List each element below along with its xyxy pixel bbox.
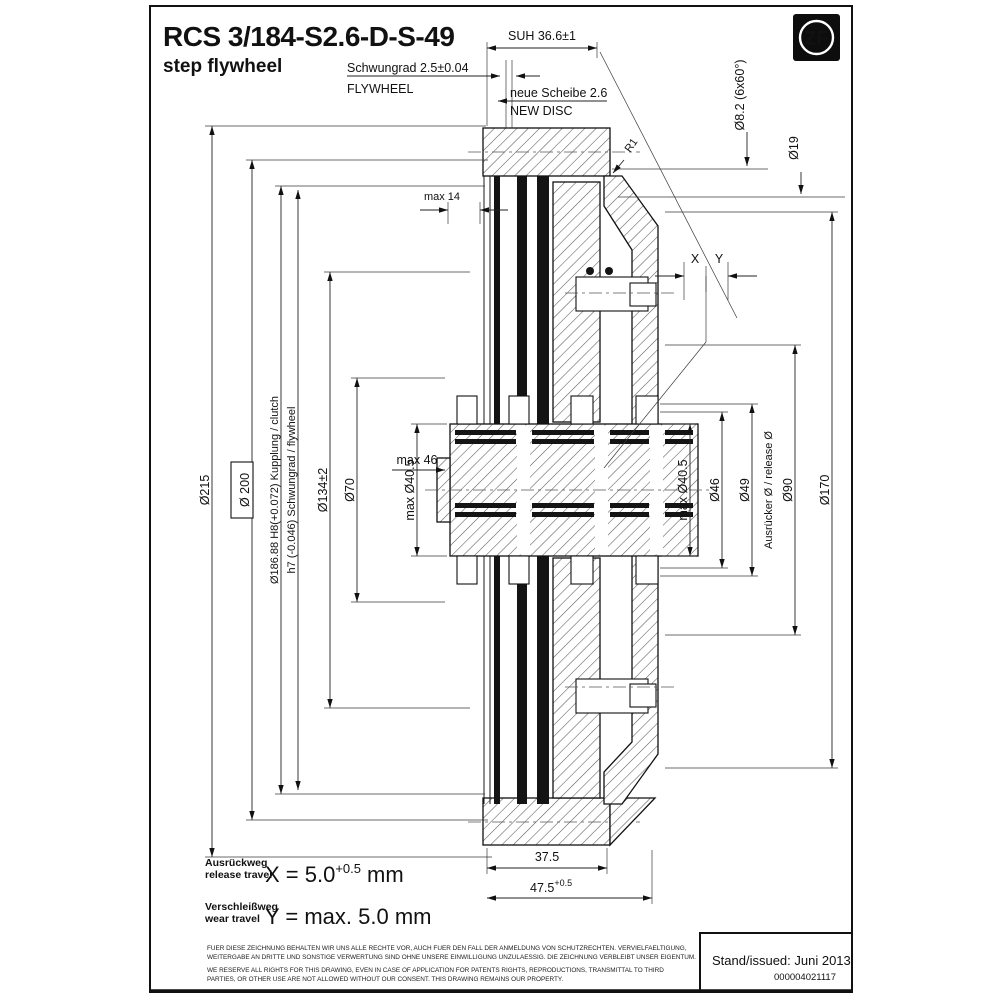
dim-375-label: 37.5 bbox=[535, 850, 559, 864]
dim-bolt-circle-label: Ø8.2 (6x60°) bbox=[733, 59, 747, 130]
legal-notice: FUER DIESE ZEICHNUNG BEHALTEN WIR UNS AL… bbox=[207, 945, 696, 983]
dim-max46-label: max 46 bbox=[397, 453, 438, 467]
drawing-subtitle: step flywheel bbox=[163, 56, 282, 77]
part-number-title: RCS 3/184-S2.6-D-S-49 bbox=[163, 21, 454, 52]
dim-d90-label: Ø90 bbox=[781, 478, 795, 502]
dim-d49-label: Ø49 bbox=[738, 478, 752, 502]
zf-logo: ZF bbox=[793, 14, 840, 61]
legal-de-line2: WEITERGABE AN DRITTE UND SONSTIGE VERWER… bbox=[207, 954, 696, 961]
flywheel-bottom-ring bbox=[468, 798, 655, 845]
legal-en-line1: WE RESERVE ALL RIGHTS FOR THIS DRAWING, … bbox=[207, 967, 664, 974]
doc-number: 000004021117 bbox=[774, 972, 836, 983]
release-travel-en: release travel bbox=[205, 869, 272, 881]
right-dimensions: max Ø40.5 Ø46 Ø49 Ausrücker Ø / release … bbox=[660, 212, 838, 768]
legal-en-line2: PARTIES, OR OTHER USE ARE NOT ALLOWED WI… bbox=[207, 976, 563, 983]
dim-475-label: 47.5+0.5 bbox=[530, 878, 572, 895]
new-disc-en: NEW DISC bbox=[510, 104, 573, 118]
travel-x-label: X bbox=[691, 252, 700, 266]
dim-d46-label: Ø46 bbox=[708, 478, 722, 502]
dim-max14-label: max 14 bbox=[424, 191, 460, 203]
title-block: Stand/issued: Juni 2013 000004021117 bbox=[712, 953, 851, 983]
dim-d134-label: Ø134±2 bbox=[316, 468, 330, 512]
release-travel-formula: X = 5.0+0.5mm bbox=[265, 861, 404, 887]
new-disc-de: neue Scheibe 2.6 bbox=[510, 86, 607, 100]
spline-hub bbox=[425, 424, 718, 556]
technical-drawing: ZF RCS 3/184-S2.6-D-S-49 step flywheel bbox=[0, 0, 1000, 1000]
bottom-dimensions: 37.5 47.5+0.5 bbox=[487, 848, 652, 904]
dim-h7-label: h7 (-0.046) Schwungrad / flywheel bbox=[286, 407, 298, 574]
flywheel-thickness-en: FLYWHEEL bbox=[347, 82, 413, 96]
zf-logo-text: ZF bbox=[805, 29, 828, 50]
dim-max405-right-label: max Ø40.5 bbox=[676, 459, 690, 520]
pressure-plate-bottom bbox=[553, 558, 600, 798]
legal-de-line1: FUER DIESE ZEICHNUNG BEHALTEN WIR UNS AL… bbox=[207, 945, 687, 952]
dim-d170-label: Ø170 bbox=[818, 475, 832, 506]
dim-max405-left-label: max Ø40.5 bbox=[403, 459, 417, 520]
release-travel-de: Ausrückweg bbox=[205, 857, 267, 869]
travel-formulas: Ausrückweg release travel X = 5.0+0.5mm … bbox=[204, 857, 431, 929]
dim-d200-label: Ø 200 bbox=[238, 473, 252, 507]
issued-date: Stand/issued: Juni 2013 bbox=[712, 953, 851, 968]
dim-d18688-label: Ø186.88 H8(+0.072) Kupplung / clutch bbox=[269, 396, 281, 584]
dim-suh-label: SUH 36.6±1 bbox=[508, 29, 576, 43]
wear-travel-en: wear travel bbox=[204, 913, 260, 925]
wear-travel-formula: Y = max. 5.0 mm bbox=[265, 904, 431, 929]
release-bearing-bottom bbox=[565, 679, 678, 713]
dim-d215-label: Ø215 bbox=[198, 475, 212, 506]
dim-d70-label: Ø70 bbox=[343, 478, 357, 502]
travel-y-label: Y bbox=[715, 252, 724, 266]
release-diameter-label: Ausrücker Ø / release Ø bbox=[763, 431, 775, 549]
flywheel-thickness-de: Schwungrad 2.5±0.04 bbox=[347, 61, 469, 75]
dim-d19-label: Ø19 bbox=[787, 136, 801, 160]
